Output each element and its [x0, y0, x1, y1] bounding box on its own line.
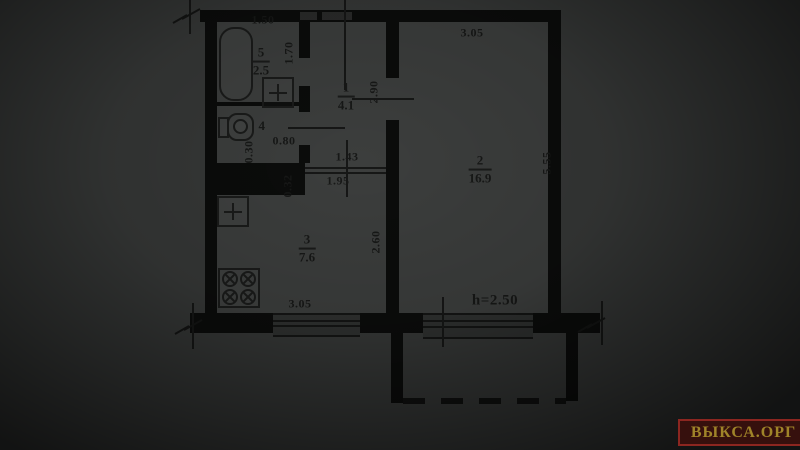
- dim-kitchen-width: 3.05: [289, 297, 312, 312]
- room-number: 5: [253, 46, 270, 63]
- dim-hall-width: 1.43: [336, 150, 359, 165]
- wall-bath-hall: [299, 22, 310, 58]
- room-area: 4.1: [338, 98, 355, 114]
- dim-hall-depth: 2.90: [367, 81, 382, 104]
- dim-wc-niche: 0.30: [242, 141, 257, 164]
- break-zigzag-icon: [172, 8, 202, 26]
- wall-bath-hall: [299, 145, 310, 163]
- dimension-line: [288, 127, 345, 129]
- room-number: 2: [469, 154, 492, 171]
- watermark: ВЫКСА.ОРГ: [678, 419, 800, 446]
- room-number-wc: 4: [259, 118, 266, 134]
- dimension-line: [352, 98, 414, 100]
- room-number: 1: [338, 81, 355, 98]
- dim-kitchen-depth: 2.60: [369, 231, 384, 254]
- wall-bottom: [360, 313, 423, 333]
- stove-burners-icon: [218, 268, 260, 308]
- balcony-edge-dashed: [403, 398, 566, 404]
- room-area: 7.6: [299, 250, 316, 266]
- room-area: 2.5: [253, 63, 270, 79]
- kitchen-window: [273, 313, 360, 337]
- room-label-kitchen: 3 7.6: [299, 233, 316, 266]
- wall-kitchen-living: [386, 120, 399, 313]
- room-area: 16.9: [469, 171, 492, 187]
- dim-ceiling-height: h=2.50: [472, 293, 518, 310]
- dim-living-width: 3.05: [461, 26, 484, 41]
- dim-bath-depth: 1.70: [282, 42, 297, 65]
- dimension-line: [344, 0, 346, 90]
- balcony-door-window: [423, 313, 533, 339]
- wall-left: [205, 10, 217, 313]
- floor-plan: 1.50 5 2.5 1.70 1 4.1 2.90 3.05 2 16.9 5…: [0, 0, 800, 450]
- floor-plan-photo: 1.50 5 2.5 1.70 1 4.1 2.90 3.05 2 16.9 5…: [0, 0, 800, 450]
- break-zigzag-icon: [174, 319, 204, 337]
- room-number: 3: [299, 233, 316, 250]
- balcony-wall-right: [566, 333, 578, 401]
- sink-cross-icon: [217, 196, 249, 227]
- dim-bath-width: 1.50: [252, 13, 275, 28]
- dim-kitchen-pass: 1.95: [327, 174, 350, 189]
- entrance-door-gap: [322, 12, 352, 20]
- room-label-hall: 1 4.1: [338, 81, 355, 114]
- wall-bath-hall: [299, 86, 310, 112]
- entrance-door-gap: [300, 12, 317, 20]
- balcony-wall-left: [391, 333, 403, 403]
- break-zigzag-icon: [577, 317, 607, 335]
- wall-hall-living: [386, 22, 399, 78]
- room-area-wc: 0.80: [273, 134, 296, 149]
- room-label-bath: 5 2.5: [253, 46, 270, 79]
- room-label-living: 2 16.9: [469, 154, 492, 187]
- dim-kitchen-niche: 0.32: [281, 175, 296, 198]
- bathtub-icon: [219, 27, 253, 101]
- dim-living-depth: 5.55: [540, 152, 555, 175]
- sink-cross-icon: [262, 77, 294, 108]
- toilet-icon: [233, 119, 248, 134]
- dimension-line: [442, 297, 444, 347]
